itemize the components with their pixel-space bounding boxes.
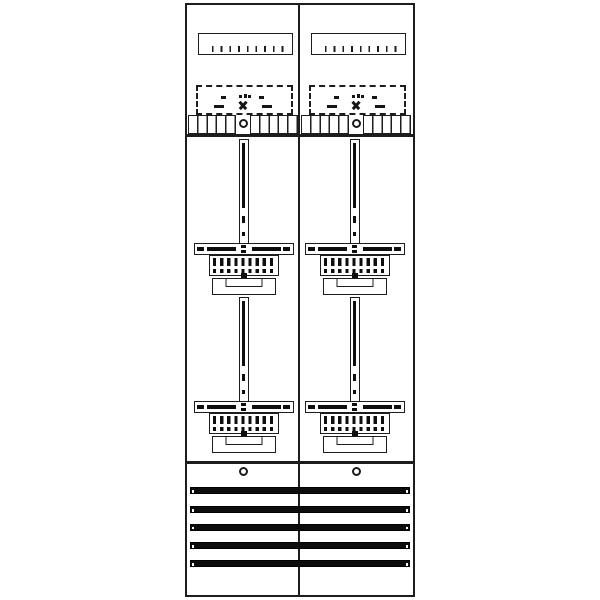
terminal-teeth-row xyxy=(213,416,275,424)
din-rail-strip xyxy=(198,33,293,55)
clamp-symbol-mark xyxy=(334,96,339,99)
cross-rail-bar-segment xyxy=(363,247,392,252)
cross-rail-bar-segment xyxy=(318,247,347,252)
rail-tick-marks-icon xyxy=(205,46,287,52)
terminal-comb-right xyxy=(363,115,411,134)
meter-mount-unit xyxy=(194,139,294,295)
cross-rail-contact-dot xyxy=(352,408,357,411)
cross-rail-bar-segment xyxy=(207,405,236,410)
terminal-comb-left xyxy=(188,115,236,134)
hanger-rail-contact-dot xyxy=(353,232,356,236)
clamp-symbol-mark xyxy=(239,95,242,98)
hanger-rail xyxy=(350,297,360,403)
cross-rail-bar-segment xyxy=(363,405,392,410)
cross-rail-bar-segment xyxy=(197,247,204,252)
busbar xyxy=(190,506,410,513)
cross-rail-bar-segment xyxy=(252,247,281,252)
meter-panel-frame xyxy=(185,3,415,597)
clamp-symbol-mark xyxy=(352,95,355,98)
cross-rail-contact-dot xyxy=(352,403,357,406)
cross-rail-contact-dot xyxy=(352,250,357,253)
busbar xyxy=(190,524,410,531)
panel-inner-area xyxy=(187,5,413,595)
hanger-rail-busbar-fill xyxy=(242,301,245,366)
mounting-bracket xyxy=(323,436,387,453)
busbar xyxy=(190,542,410,549)
cross-rail-bar-segment xyxy=(207,247,236,252)
terminal-comb-left xyxy=(301,115,349,134)
clamp-symbol-mark xyxy=(375,105,385,108)
cross-rail-bar-segment xyxy=(318,405,347,410)
cross-rail xyxy=(305,243,405,255)
hanger-rail xyxy=(239,139,249,245)
top-section-column-block xyxy=(300,5,412,134)
screw-icon xyxy=(352,467,361,476)
cross-rail-bar-segment xyxy=(252,405,281,410)
screw-hole-icon xyxy=(352,119,361,128)
hanger-rail-contact-dot xyxy=(353,390,356,394)
clamp-symbol-mark xyxy=(248,95,251,98)
cross-rail-contact-dot xyxy=(241,250,246,253)
busbar xyxy=(190,560,410,567)
terminal-teeth-row xyxy=(324,416,386,424)
top-section-column-block xyxy=(187,5,299,134)
terminal-teeth-row xyxy=(324,258,386,266)
hanger-rail-contact-dot xyxy=(242,374,245,381)
mounting-bracket xyxy=(212,278,276,295)
screw-hole-icon xyxy=(239,119,248,128)
clamp-symbol-mark xyxy=(262,105,272,108)
cross-rail-bar-segment xyxy=(283,247,290,252)
cross-rail-bar-segment xyxy=(197,405,204,410)
cross-rail xyxy=(194,243,294,255)
clamp-symbol-mark xyxy=(357,94,360,98)
mounting-bracket-inner xyxy=(226,278,263,288)
terminal-teeth-row xyxy=(213,258,275,266)
meter-mount-unit xyxy=(194,297,294,453)
rail-tick-marks-icon xyxy=(318,46,400,52)
hanger-rail-contact-dot xyxy=(242,390,245,394)
mounting-bracket-inner xyxy=(337,278,374,288)
meter-mount-unit xyxy=(305,139,405,295)
cross-rail-bar-segment xyxy=(394,405,401,410)
clamp-symbol-mark xyxy=(244,94,247,98)
cross-rail-contact-dot xyxy=(241,245,246,248)
bottom-section-divider-line xyxy=(187,461,413,464)
clamp-symbol-mark xyxy=(372,96,377,99)
clamp-symbol-mark xyxy=(221,96,226,99)
cross-rail-bar-segment xyxy=(308,405,315,410)
cross-rail-contact-dot xyxy=(352,245,357,248)
hanger-rail xyxy=(350,139,360,245)
hanger-rail-contact-dot xyxy=(353,374,356,381)
meter-mount-unit xyxy=(305,297,405,453)
mounting-bracket-inner xyxy=(226,436,263,446)
cross-rail xyxy=(305,401,405,413)
hanger-rail-contact-dot xyxy=(242,216,245,223)
cross-rail-bar-segment xyxy=(283,405,290,410)
clamp-symbol-mark xyxy=(327,105,337,108)
clamp-symbol-mark xyxy=(259,96,264,99)
hanger-rail-contact-dot xyxy=(242,232,245,236)
mounting-bracket-inner xyxy=(337,436,374,446)
clamp-symbol-mark xyxy=(214,105,224,108)
terminal-comb-right xyxy=(250,115,298,134)
clamp-symbol-mark xyxy=(361,95,364,98)
hanger-rail-contact-dot xyxy=(353,216,356,223)
mounting-bracket xyxy=(323,278,387,295)
hanger-rail xyxy=(239,297,249,403)
din-rail-strip xyxy=(311,33,406,55)
cross-rail xyxy=(194,401,294,413)
hanger-rail-busbar-fill xyxy=(353,143,356,208)
cross-rail-contact-dot xyxy=(241,408,246,411)
mounting-bracket xyxy=(212,436,276,453)
top-section-divider-line xyxy=(187,134,413,137)
hanger-rail-busbar-fill xyxy=(242,143,245,208)
cross-rail-contact-dot xyxy=(241,403,246,406)
busbar xyxy=(190,487,410,494)
hanger-rail-busbar-fill xyxy=(353,301,356,366)
cross-rail-bar-segment xyxy=(394,247,401,252)
cross-rail-bar-segment xyxy=(308,247,315,252)
screw-icon xyxy=(239,467,248,476)
